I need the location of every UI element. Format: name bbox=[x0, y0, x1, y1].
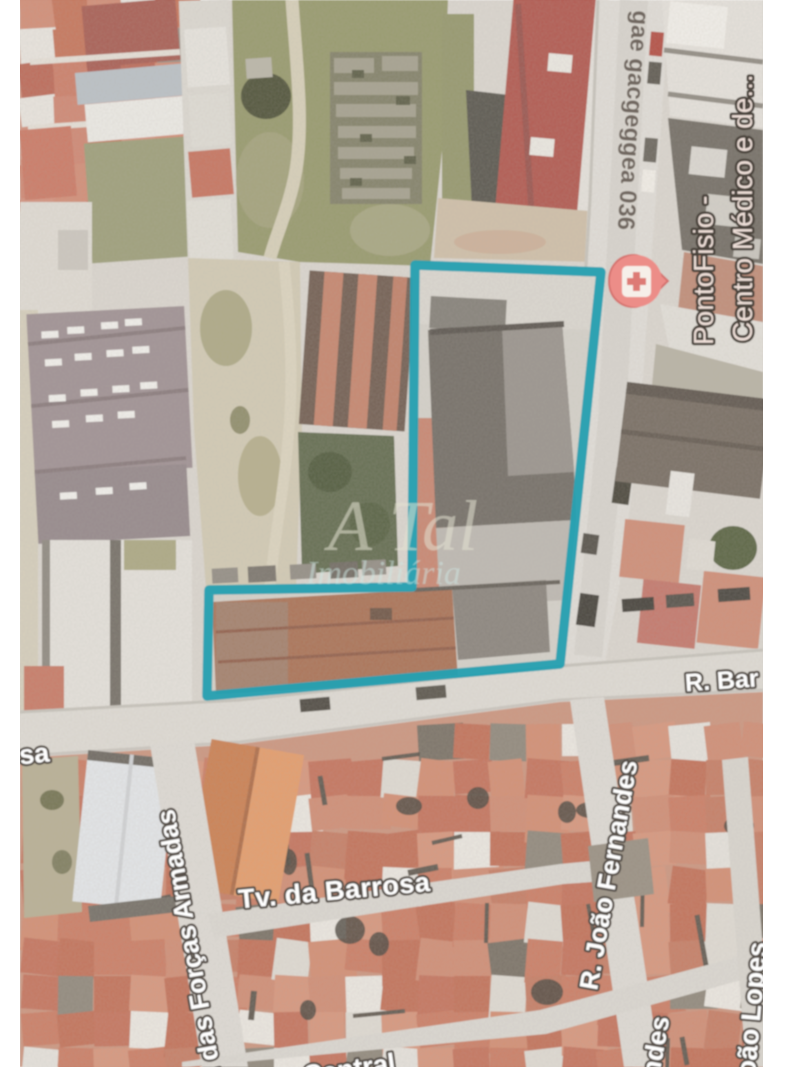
svg-text:sa: sa bbox=[18, 737, 52, 770]
svg-text:PontoFisio -: PontoFisio - bbox=[688, 196, 719, 345]
svg-text:Imobiliária: Imobiliária bbox=[305, 555, 461, 592]
svg-text:Centro Médico e de...: Centro Médico e de... bbox=[727, 74, 758, 342]
svg-text:R. Bar: R. Bar bbox=[684, 664, 760, 697]
svg-text:A Tal: A Tal bbox=[324, 486, 478, 566]
